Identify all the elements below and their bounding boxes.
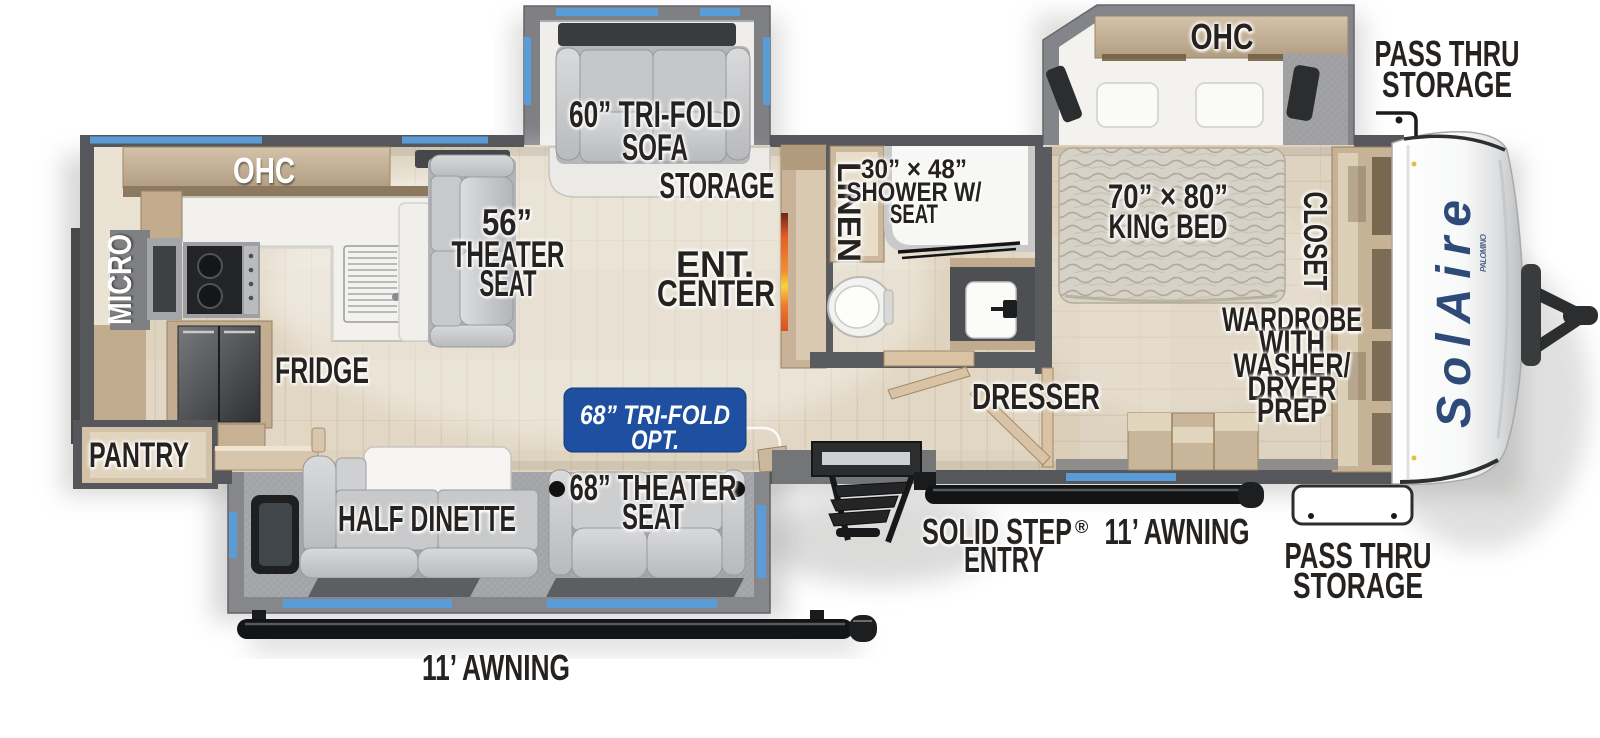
svg-text:PALOMINO: PALOMINO [1479,233,1488,272]
svg-text:OPT.: OPT. [631,425,679,455]
svg-text:PANTRY: PANTRY [89,436,189,475]
svg-text:SOFA: SOFA [622,127,688,168]
svg-text:MICRO: MICRO [101,234,138,325]
svg-text:SEAT: SEAT [890,199,938,229]
svg-text:11’ AWNING: 11’ AWNING [422,647,570,688]
svg-text:STORAGE: STORAGE [1293,565,1423,606]
svg-text:SEAT: SEAT [622,496,684,537]
svg-text:CLOSET: CLOSET [1297,192,1334,291]
svg-text:DRESSER: DRESSER [972,376,1100,417]
svg-text:PREP: PREP [1257,392,1327,430]
svg-text:STORAGE: STORAGE [1382,64,1512,105]
svg-text:SEAT: SEAT [480,263,537,304]
svg-text:KING BED: KING BED [1109,208,1228,246]
svg-text:®: ® [1075,517,1088,537]
svg-text:FRIDGE: FRIDGE [275,350,369,391]
svg-text:HALF DINETTE: HALF DINETTE [338,498,516,539]
svg-text:OHC: OHC [233,150,295,191]
svg-text:ENTRY: ENTRY [964,539,1044,580]
svg-text:CENTER: CENTER [657,273,775,314]
svg-text:11’ AWNING: 11’ AWNING [1105,511,1250,552]
svg-text:OHC: OHC [1191,16,1254,57]
svg-text:STORAGE: STORAGE [660,165,775,206]
